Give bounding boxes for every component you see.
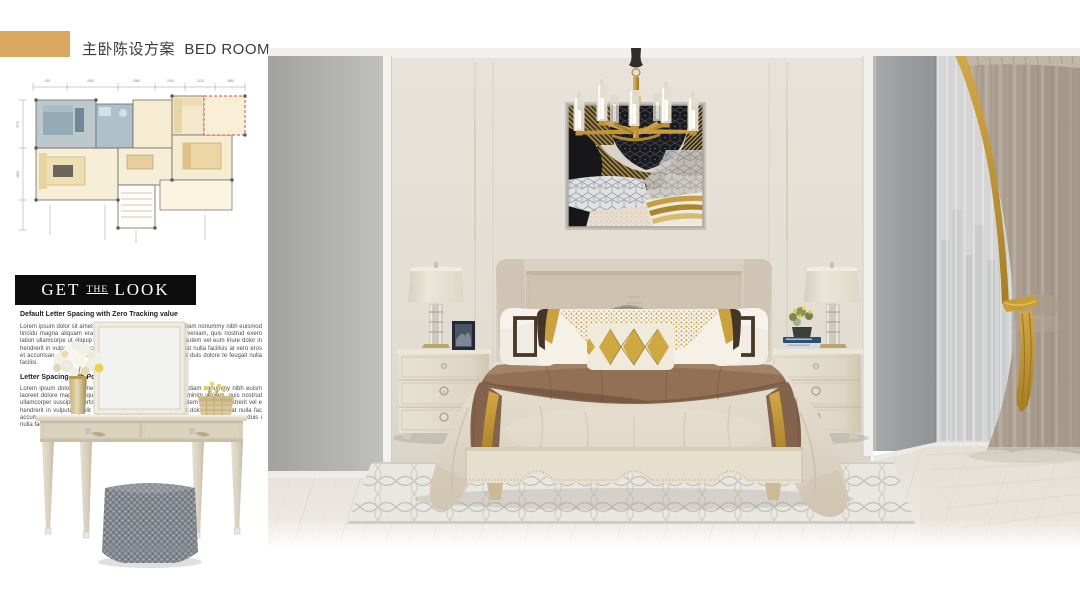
svg-text:402: 402 (45, 79, 51, 83)
svg-text:4050: 4050 (87, 79, 94, 83)
svg-text:2680: 2680 (227, 79, 234, 83)
svg-text:3080: 3080 (133, 79, 140, 83)
svg-text:2150: 2150 (167, 79, 174, 83)
svg-text:4650: 4650 (16, 171, 20, 178)
svg-text:1130: 1130 (197, 79, 204, 83)
svg-text:3770: 3770 (16, 121, 20, 128)
